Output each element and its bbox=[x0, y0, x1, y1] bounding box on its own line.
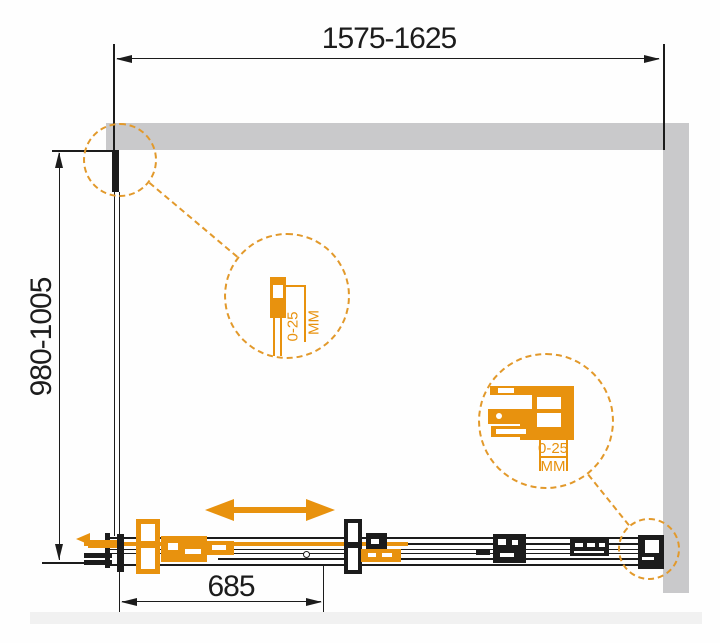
technical-drawing-canvas: 1575-1625 980-1005 685 bbox=[0, 0, 720, 643]
detail-profile-range-label: 0-25 bbox=[286, 297, 301, 357]
slide-direction-arrow-left-icon bbox=[205, 499, 234, 521]
roller-assembly-2-groove bbox=[574, 551, 604, 553]
roller-carriage-mid-slot bbox=[371, 539, 379, 544]
extension-line-door-right bbox=[323, 566, 325, 612]
detail-profile-insert bbox=[273, 298, 283, 315]
detail-profile-unit-label: MM bbox=[307, 293, 322, 353]
roller-orange-mid-slot-2 bbox=[382, 553, 392, 557]
dim-height-label: 980-1005 bbox=[27, 248, 57, 426]
roller-assembly-2 bbox=[570, 539, 609, 556]
detail-circle-end-bracket bbox=[618, 518, 680, 580]
bottom-left-bar-2 bbox=[84, 560, 112, 565]
door-bracket-mid-rail bbox=[344, 542, 362, 548]
door-bottom-edge bbox=[218, 558, 655, 560]
door-handle-bar bbox=[88, 540, 118, 548]
door-frame-post bbox=[117, 534, 124, 572]
dimension-arrow-door-right bbox=[306, 598, 322, 606]
rail-base bbox=[107, 564, 663, 567]
dim-width-label: 1575-1625 bbox=[299, 24, 479, 54]
detail-profile-glass bbox=[273, 318, 282, 356]
leader-line-roller-to-bracket bbox=[587, 474, 629, 526]
carriage-slot-1 bbox=[168, 543, 178, 550]
right-wall bbox=[663, 123, 689, 593]
guide-block-slot bbox=[212, 545, 226, 550]
dimension-line-width bbox=[117, 58, 659, 60]
detail-roller-lower-bar-slot bbox=[496, 429, 526, 434]
roller-block-right-slot-2 bbox=[512, 540, 518, 545]
stopper-small bbox=[476, 549, 490, 555]
detail-roller-unit-label: MM bbox=[523, 459, 583, 474]
dim-door-label: 685 bbox=[181, 572, 281, 602]
roller-block-right-slot-1 bbox=[498, 539, 506, 545]
dimension-arrow-up bbox=[55, 152, 63, 168]
detail-profile-dim-tick bbox=[286, 285, 306, 287]
extension-line-door-left bbox=[119, 566, 121, 612]
detail-roller-top-bar-slot-1 bbox=[498, 388, 514, 393]
floor-strip bbox=[30, 612, 702, 624]
roller-orange-mid bbox=[361, 549, 401, 562]
slide-direction-arrow-shaft bbox=[233, 507, 307, 513]
detail-circle-corner bbox=[83, 123, 157, 197]
dimension-arrow-left bbox=[116, 55, 132, 63]
extension-line-width-right bbox=[663, 44, 665, 150]
dimension-arrow-down bbox=[55, 544, 63, 560]
leader-line-corner-to-profile bbox=[149, 182, 238, 258]
slide-direction-arrow-right-icon bbox=[306, 499, 335, 521]
roller-assembly-2-slot-3 bbox=[599, 543, 605, 547]
door-bracket-left-rail bbox=[136, 541, 160, 548]
bottom-left-bar-1 bbox=[84, 553, 112, 558]
dimension-line-height bbox=[59, 153, 61, 560]
dimension-arrow-door-left bbox=[121, 598, 137, 606]
top-wall bbox=[106, 123, 689, 150]
dimension-arrow-right bbox=[644, 55, 660, 63]
roller-assembly-2-slot-1 bbox=[575, 543, 583, 547]
detail-roller-left-bracket bbox=[488, 409, 521, 424]
fixed-panel-glass bbox=[114, 192, 120, 536]
detail-profile-cap bbox=[270, 277, 286, 285]
track-roller-dot bbox=[303, 551, 310, 558]
detail-roller-main-window-1 bbox=[537, 397, 561, 409]
detail-roller-bracket-hole bbox=[496, 413, 502, 419]
carriage-slot-2 bbox=[185, 549, 201, 554]
roller-block-right-slot-3 bbox=[500, 553, 514, 557]
roller-orange-mid-slot-1 bbox=[368, 553, 376, 557]
roller-assembly-2-slot-2 bbox=[587, 543, 595, 547]
detail-roller-range-label: 0-25 bbox=[523, 441, 583, 456]
detail-roller-main-window-2 bbox=[537, 413, 561, 427]
